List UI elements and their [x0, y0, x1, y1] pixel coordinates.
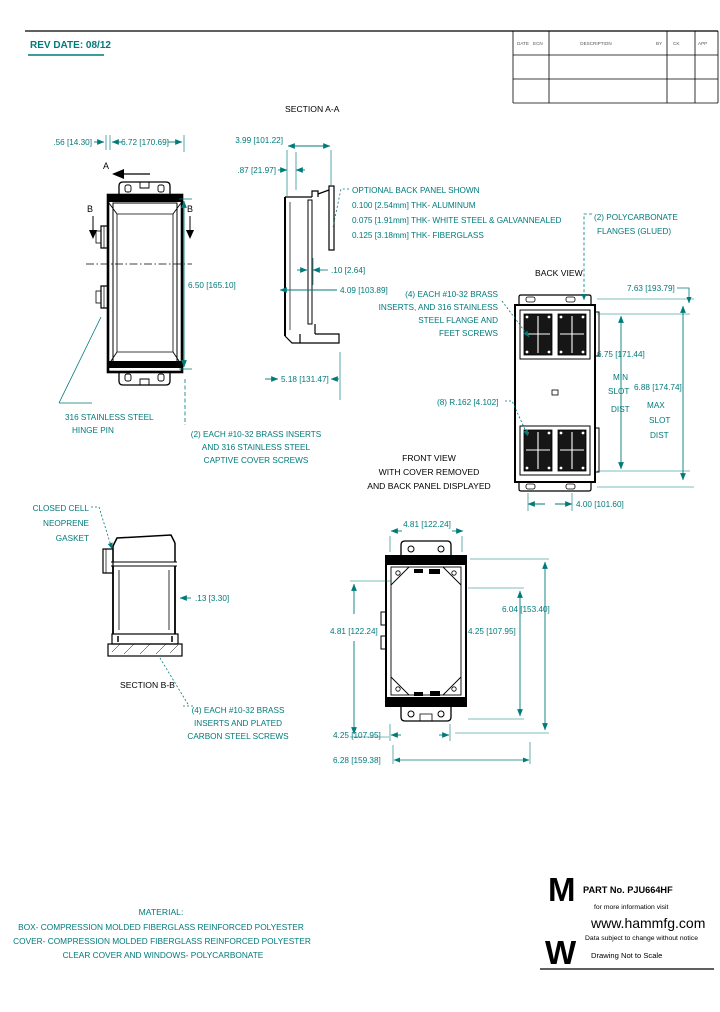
dim-slot-min-l4: DIST — [611, 405, 630, 414]
dim-front-width-right: 4.25 [107.95] — [468, 627, 516, 636]
cover-outline — [108, 195, 182, 372]
material-block: MATERIAL: BOX- COMPRESSION MOLDED FIBERG… — [13, 907, 311, 960]
dim-front-width-top: 4.81 [122.24] — [403, 520, 451, 529]
front-view-geometry — [381, 541, 466, 721]
note-gasket-line2: NEOPRENE — [43, 519, 89, 528]
dim-slot-min-l3: SLOT — [608, 387, 629, 396]
dim-wall-thickness: .13 [3.30] — [195, 594, 229, 603]
material-line3: CLEAR COVER AND WINDOWS- POLYCARBONATE — [63, 950, 264, 960]
back-view-geometry — [515, 295, 599, 491]
rev-date-label: REV DATE: 08/12 — [30, 40, 111, 51]
dim-cover-width: 6.72 [170.69] — [121, 138, 169, 147]
dim-slot-max: 6.88 [174.74] — [634, 383, 682, 392]
note-feet-line1: (4) EACH #10-32 BRASS — [405, 290, 498, 299]
material-line1: BOX- COMPRESSION MOLDED FIBERGLASS REINF… — [18, 922, 304, 932]
revtable-col-date: DATE — [517, 41, 529, 46]
section-bb-geometry — [103, 535, 182, 656]
front-view-title-line2: WITH COVER REMOVED — [379, 467, 480, 477]
note-gasket-line3: GASKET — [56, 534, 89, 543]
section-arrow-b-right-icon — [186, 230, 194, 239]
note-flanges-line1: (2) POLYCARBONATE — [594, 213, 678, 222]
front-view-dimensions — [350, 531, 549, 764]
section-marker-b-right-label: B — [187, 204, 193, 214]
revtable-col-description: DESCRIPTION — [580, 41, 611, 46]
back-view-title: BACK VIEW — [535, 268, 584, 278]
dim-front-width-bottom: 4.25 [107.95] — [333, 731, 381, 740]
note-carbon-line1: (4) EACH #10-32 BRASS — [192, 706, 285, 715]
dim-slot-width: 4.00 [101.60] — [576, 500, 624, 509]
note-captive-line2: AND 316 STAINLESS STEEL — [202, 443, 311, 452]
dim-front-height: 6.04 [153.40] — [502, 605, 550, 614]
material-title: MATERIAL: — [139, 907, 184, 917]
dim-slot-max-l3: SLOT — [649, 416, 670, 425]
cover-view-geometry — [86, 182, 192, 385]
note-backpanel-line4: 0.125 [3.18mm] THK- FIBERGLASS — [352, 231, 484, 240]
note-hinge-line1: 316 STAINLESS STEEL — [65, 413, 154, 422]
section-arrow-a-icon — [112, 169, 124, 179]
hammond-logo-icon-bottom: W — [545, 934, 577, 971]
back-flange-edge — [329, 186, 334, 250]
note-hinge-line2: HINGE PIN — [72, 426, 114, 435]
note-carbon-line2: INSERTS AND PLATED — [194, 719, 282, 728]
title-block: DATE ECN DESCRIPTION BY CK APP REV DATE:… — [25, 31, 718, 103]
website-url[interactable]: www.hammfg.com — [590, 915, 705, 931]
dim-panel-thickness: .10 [2.64] — [331, 266, 365, 275]
drawing-canvas: DATE ECN DESCRIPTION BY CK APP REV DATE:… — [0, 0, 720, 1012]
front-view-title-line1: FRONT VIEW — [402, 453, 457, 463]
dim-slot-max-l4: DIST — [650, 431, 669, 440]
cover-view-dimensions — [59, 135, 192, 425]
note-captive-line3: CAPTIVE COVER SCREWS — [204, 456, 309, 465]
footer-info-text: for more information visit — [594, 904, 669, 911]
material-line2: COVER- COMPRESSION MOLDED FIBERGLASS REI… — [13, 936, 311, 946]
note-feet-line2: INSERTS, AND 316 STAINLESS — [379, 303, 499, 312]
note-feet-line3: STEEL FLANGE AND — [418, 316, 498, 325]
back-panel-edge — [308, 200, 312, 324]
section-marker-b-left-label: B — [87, 204, 93, 214]
drawing-page: DATE ECN DESCRIPTION BY CK APP REV DATE:… — [0, 0, 720, 1012]
dim-depth-total: 3.99 [101.22] — [235, 136, 283, 145]
note-carbon-line3: CARBON STEEL SCREWS — [187, 732, 289, 741]
note-backpanel-line1: OPTIONAL BACK PANEL SHOWN — [352, 186, 480, 195]
dim-front-width-overall: 6.28 [159.38] — [333, 756, 381, 765]
dim-depth-cover: .87 [21.97] — [237, 166, 276, 175]
gasket-hinge-bump — [103, 549, 113, 573]
footer-block: M W PART No. PJU664HF for more informati… — [540, 871, 714, 971]
dim-depth-inner: 4.09 [103.89] — [340, 286, 388, 295]
note-backpanel-line2: 0.100 [2.54mm] THK- ALUMINUM — [352, 201, 476, 210]
front-view-title-line3: AND BACK PANEL DISPLAYED — [367, 481, 491, 491]
note-captive-line1: (2) EACH #10-32 BRASS INSERTS — [191, 430, 322, 439]
revtable-col-ck: CK — [673, 41, 680, 46]
note-gasket-line1: CLOSED CELL — [33, 504, 90, 513]
section-marker-a-label: A — [103, 161, 109, 171]
part-number-label: PART No. PJU664HF — [583, 885, 673, 895]
note-backpanel-line3: 0.075 [1.91mm] THK- WHITE STEEL & GALVAN… — [352, 216, 562, 225]
dim-depth-outer: 5.18 [131.47] — [281, 375, 329, 384]
note-feet-line4: FEET SCREWS — [439, 329, 499, 338]
dim-front-width-left: 4.81 [122.24] — [330, 627, 378, 636]
note-flanges-line2: FLANGES (GLUED) — [597, 227, 671, 236]
dim-slot-min: 6.75 [171.44] — [597, 350, 645, 359]
hammond-logo-icon-top: M — [548, 871, 576, 908]
dim-flange-offset: .56 [14.30] — [53, 138, 92, 147]
section-aa-geometry — [285, 186, 339, 343]
revtable-col-by: BY — [656, 41, 662, 46]
dim-back-length: 7.63 [193.79] — [627, 284, 675, 293]
section-bb-title: SECTION B-B — [120, 680, 175, 690]
dim-slot-max-l2: MAX — [647, 401, 665, 410]
revtable-col-ecn: ECN — [533, 41, 543, 46]
section-aa-title: SECTION A-A — [285, 104, 340, 114]
dim-slot-min-l2: MIN — [613, 373, 628, 382]
dim-corner-radius: (8) R.162 [4.102] — [437, 398, 498, 407]
revtable-col-app: APP — [698, 41, 707, 46]
dim-cover-height: 6.50 [165.10] — [188, 281, 236, 290]
footer-disclaimer-text: Data subject to change without notice — [585, 935, 698, 942]
scale-note-text: Drawing Not to Scale — [591, 951, 662, 960]
